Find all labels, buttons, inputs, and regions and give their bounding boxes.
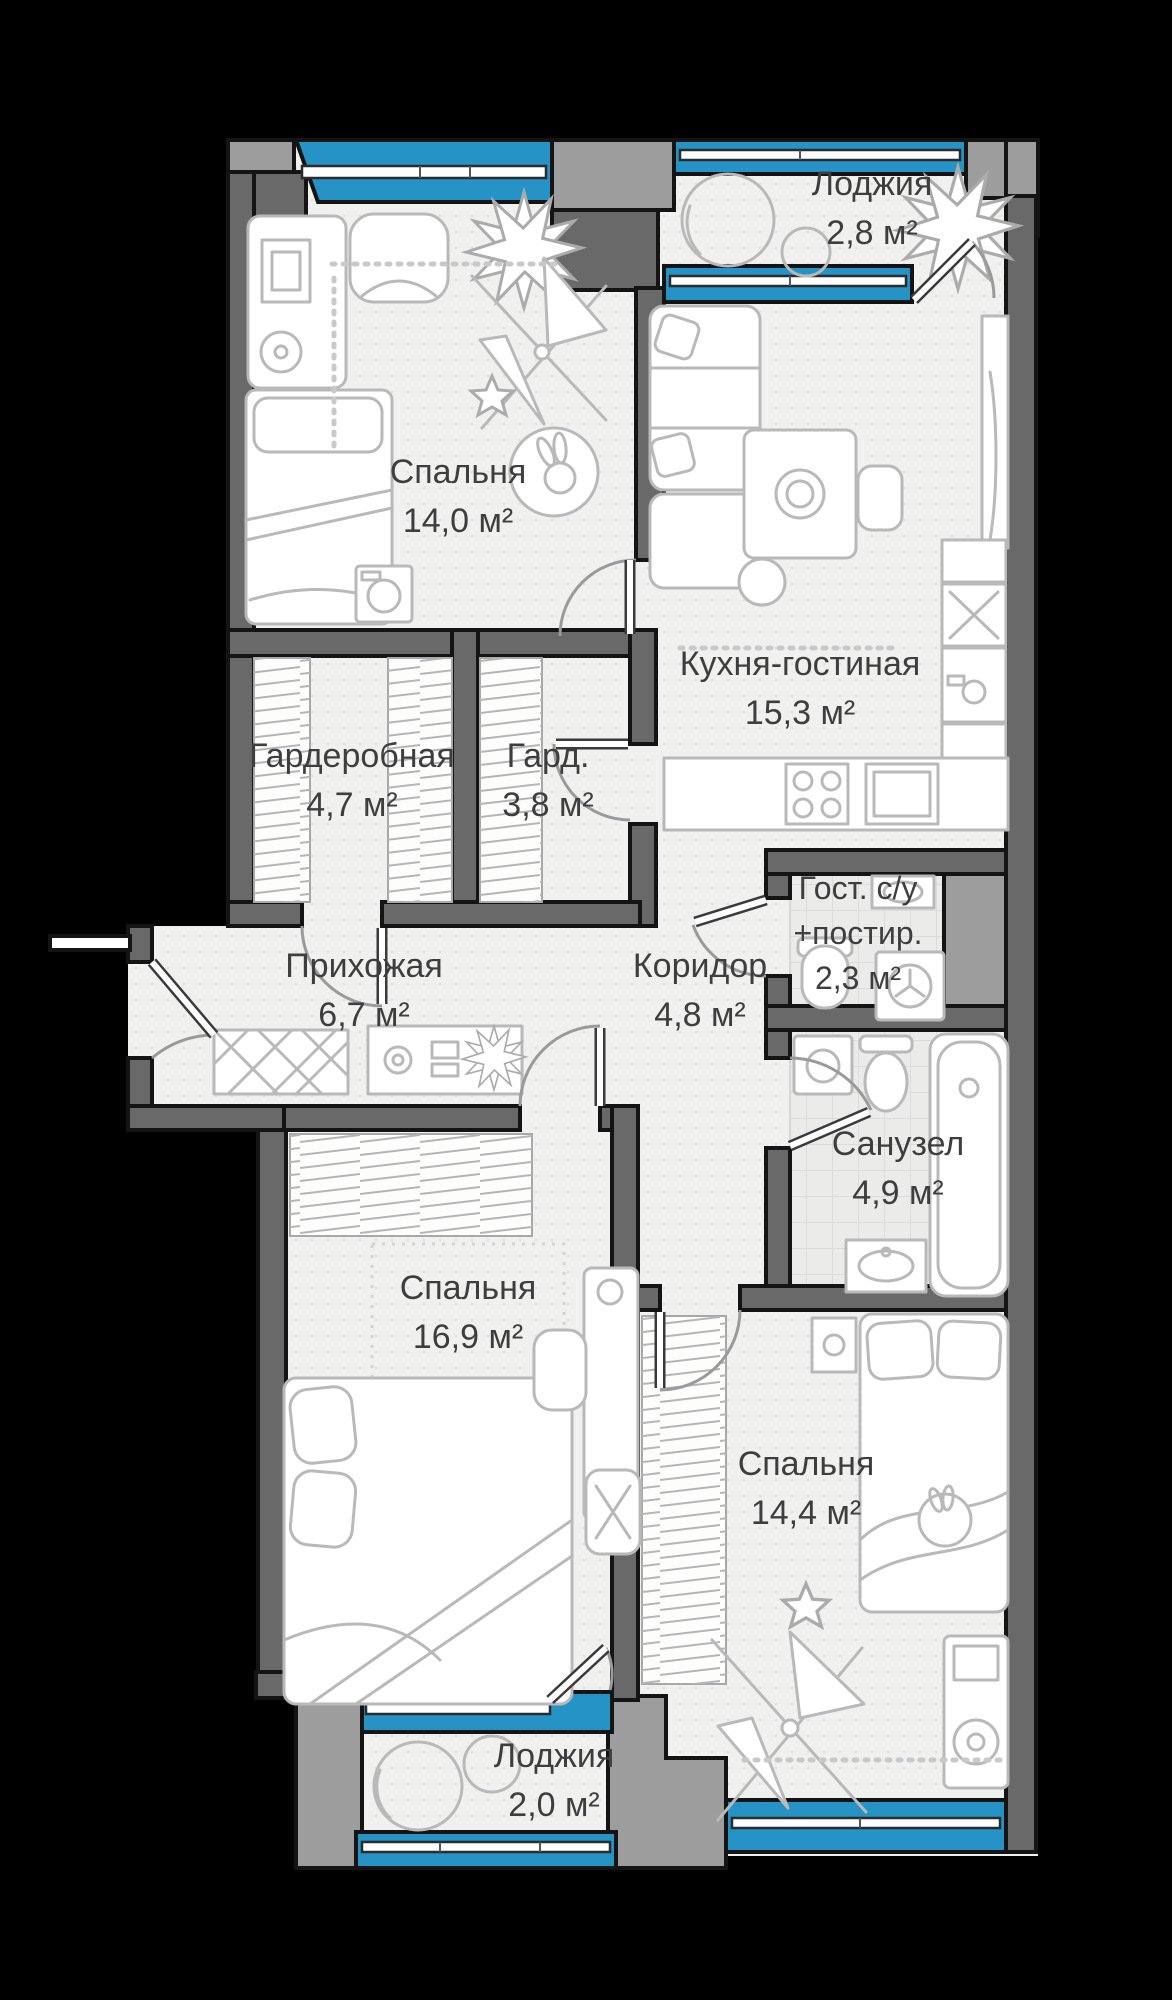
room-area: 4,7 м²	[249, 781, 455, 830]
room-area: 16,9 м²	[400, 1313, 537, 1362]
toilet-icon	[860, 1036, 912, 1111]
room-label-wardrobe-small: Гард. 3,8 м²	[502, 732, 593, 830]
floor-plan-svg	[0, 0, 1172, 2000]
room-name: Кухня-гостиная	[680, 640, 921, 689]
room-area: 14,0 м²	[390, 497, 527, 546]
room-name: Прихожая	[285, 942, 443, 991]
window-bedroom-top-glass	[302, 166, 546, 178]
duct-shaft	[944, 850, 1006, 1030]
wall-hallway-top-right	[382, 902, 640, 926]
room-name: Спальня	[738, 1440, 875, 1489]
room-area: 4,8 м²	[633, 991, 767, 1040]
pier-top-left	[228, 140, 294, 174]
armchair-icon	[350, 214, 448, 302]
wall-bedroom-bottom	[228, 630, 638, 656]
room-label-guest-bath: Гост. с/у +постир. 2,3 м²	[793, 866, 922, 1001]
room-label-kitchen: Кухня-гостиная 15,3 м²	[680, 640, 921, 738]
double-bed-icon	[860, 1314, 1008, 1612]
wardrobe-rack-icon	[290, 1134, 532, 1236]
wall-bedroom-mid-left	[258, 1130, 286, 1676]
chair-icon	[858, 466, 902, 530]
window-loggia-bottom-outer-glass	[362, 1842, 610, 1852]
wall-hallway-bottom-left	[128, 1106, 284, 1130]
wall-hallway-top-left	[228, 902, 302, 926]
room-name-line2: +постир.	[793, 911, 922, 956]
room-label-corridor: Коридор 4,8 м²	[633, 942, 767, 1040]
wall-wardrobe-divider	[452, 630, 478, 926]
floor-plan: Лоджия 2,8 м² Спальня 14,0 м² Кухня-гост…	[0, 0, 1172, 2000]
stool-icon	[739, 559, 785, 605]
room-name: Лоджия	[812, 160, 932, 209]
room-area: 2,8 м²	[812, 209, 932, 258]
room-area: 6,7 м²	[285, 991, 443, 1040]
double-bed-icon	[284, 1378, 572, 1704]
wall-guest-bath-left-a	[766, 874, 790, 898]
wall-bathroom-left-b	[766, 1148, 790, 1300]
window-bedroom-bottom-glass	[732, 1818, 1000, 1828]
nightstand-icon	[812, 1318, 856, 1372]
room-area: 14,4 м²	[738, 1489, 875, 1538]
room-area: 2,0 м²	[494, 1781, 614, 1830]
room-name: Коридор	[633, 942, 767, 991]
folding-chair-icon	[586, 1470, 640, 1554]
room-label-loggia-bottom: Лоджия 2,0 м²	[494, 1732, 614, 1830]
wall-corridor-bedroom	[284, 1106, 520, 1130]
room-name: Гардеробная	[249, 732, 455, 781]
room-name: Спальня	[390, 448, 527, 497]
wall-ward-small-right-top	[630, 630, 656, 744]
room-area: 15,3 м²	[680, 689, 921, 738]
wall-bedroom-bottom-top-a	[638, 1286, 660, 1310]
room-name: Гард.	[502, 732, 593, 781]
room-area: 2,3 м²	[793, 956, 922, 1001]
washing-machine-icon	[356, 566, 412, 622]
room-label-loggia-top: Лоджия 2,8 м²	[812, 160, 932, 258]
room-label-bedroom-top: Спальня 14,0 м²	[390, 448, 527, 546]
wall-bathroom-left-a	[766, 1030, 790, 1058]
room-label-hallway: Прихожая 6,7 м²	[285, 942, 443, 1040]
pier-balcony-left	[296, 1696, 362, 1868]
sink-icon	[846, 1240, 926, 1292]
pier-top-middle	[552, 140, 674, 210]
window-loggia-kitchen-glass	[670, 276, 906, 286]
dresser-icon	[944, 1636, 1008, 1788]
room-area: 4,9 м²	[832, 1169, 964, 1218]
room-label-bathroom: Санузел 4,9 м²	[832, 1120, 964, 1218]
room-label-bedroom-mid: Спальня 16,9 м²	[400, 1264, 537, 1362]
room-label-bedroom-bottom: Спальня 14,4 м²	[738, 1440, 875, 1538]
room-label-wardrobe-big: Гардеробная 4,7 м²	[249, 732, 455, 830]
chair-icon	[534, 1330, 586, 1410]
window-loggia-top-glass	[680, 150, 960, 160]
entry-threshold-mark	[50, 936, 130, 950]
room-name: Лоджия	[494, 1732, 614, 1781]
room-name: Спальня	[400, 1264, 537, 1313]
room-name: Санузел	[832, 1120, 964, 1169]
tv-unit-icon	[982, 316, 1008, 548]
room-name: Гост. с/у	[793, 866, 922, 911]
room-area: 3,8 м²	[502, 781, 593, 830]
wall-right	[1006, 196, 1036, 1852]
